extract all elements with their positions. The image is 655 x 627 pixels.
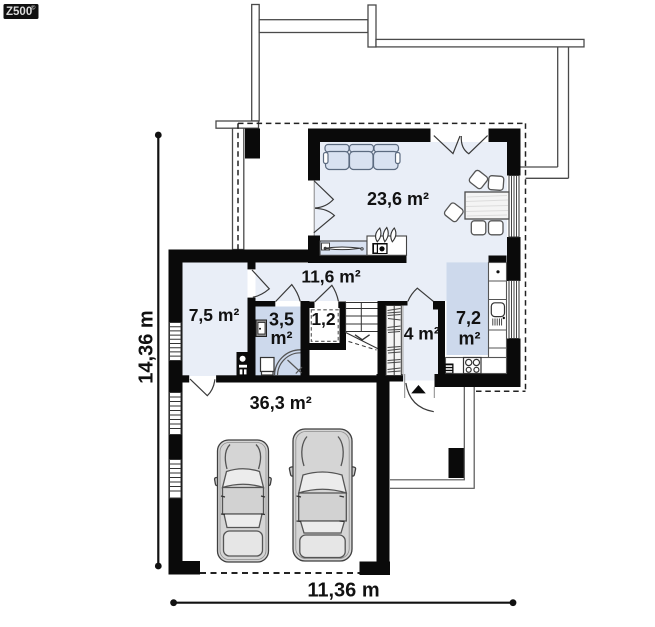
svg-text:©: © [31, 5, 36, 12]
svg-text:3,5: 3,5 [269, 310, 294, 330]
svg-text:11,6 m²: 11,6 m² [301, 266, 361, 286]
svg-text:7,5 m²: 7,5 m² [189, 305, 240, 325]
svg-text:Z500: Z500 [6, 6, 32, 18]
svg-text:1,2: 1,2 [311, 309, 336, 329]
svg-text:11,36 m: 11,36 m [307, 580, 379, 602]
svg-text:7,2: 7,2 [456, 308, 481, 328]
svg-text:23,6 m²: 23,6 m² [367, 189, 429, 209]
svg-text:36,3 m²: 36,3 m² [250, 393, 312, 413]
svg-text:14,36 m: 14,36 m [136, 310, 158, 383]
svg-text:4 m²: 4 m² [404, 323, 440, 343]
svg-text:m²: m² [271, 328, 293, 348]
svg-text:m²: m² [459, 328, 481, 348]
